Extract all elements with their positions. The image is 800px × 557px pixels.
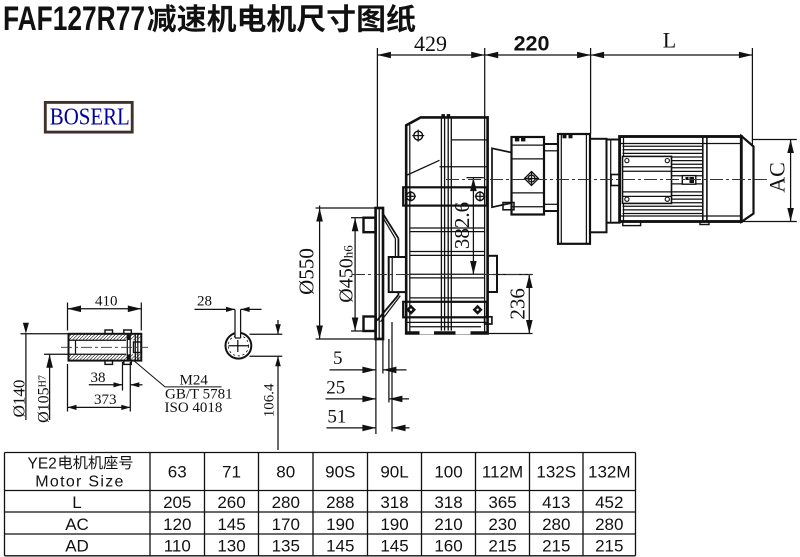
svg-text:236: 236	[506, 288, 530, 320]
svg-text:429: 429	[414, 31, 447, 56]
svg-text:L: L	[663, 28, 676, 53]
svg-text:110: 110	[164, 537, 191, 556]
svg-text:63: 63	[168, 463, 187, 482]
svg-text:AD: AD	[65, 537, 89, 556]
svg-text:130: 130	[217, 537, 245, 556]
svg-text:132M: 132M	[588, 463, 631, 482]
svg-text:318: 318	[434, 493, 462, 512]
svg-text:145: 145	[380, 537, 408, 556]
svg-text:260: 260	[217, 493, 245, 512]
svg-text:280: 280	[595, 515, 623, 534]
svg-text:210: 210	[434, 515, 462, 534]
svg-text:71: 71	[222, 463, 241, 482]
svg-text:205: 205	[163, 493, 191, 512]
svg-text:170: 170	[272, 515, 300, 534]
svg-text:80: 80	[276, 463, 295, 482]
svg-text:215: 215	[595, 537, 623, 556]
svg-text:230: 230	[488, 515, 516, 534]
svg-text:215: 215	[488, 537, 516, 556]
svg-text:373: 373	[94, 392, 117, 408]
svg-text:106.4: 106.4	[262, 383, 278, 417]
svg-text:280: 280	[542, 515, 570, 534]
svg-text:120: 120	[163, 515, 191, 534]
svg-text:FAF127R77: FAF127R77	[3, 0, 145, 38]
svg-text:452: 452	[595, 493, 623, 512]
svg-text:100: 100	[434, 463, 462, 482]
svg-text:AC: AC	[65, 515, 89, 534]
svg-text:318: 318	[380, 493, 408, 512]
svg-text:190: 190	[326, 515, 354, 534]
svg-text:28: 28	[197, 294, 212, 310]
svg-text:145: 145	[326, 537, 354, 556]
svg-text:YE2: YE2	[28, 456, 57, 473]
svg-text:38: 38	[91, 370, 106, 386]
svg-text:145: 145	[217, 515, 245, 534]
svg-text:L: L	[72, 493, 81, 512]
svg-text:160: 160	[434, 537, 462, 556]
svg-text:5: 5	[333, 348, 343, 369]
svg-text:90L: 90L	[380, 463, 408, 482]
svg-text:Ø550: Ø550	[295, 248, 319, 295]
svg-text:112M: 112M	[482, 463, 523, 482]
svg-text:Ø140: Ø140	[10, 380, 29, 418]
svg-text:25: 25	[326, 377, 345, 398]
svg-text:132S: 132S	[536, 463, 576, 482]
svg-text:BOSERL: BOSERL	[50, 105, 130, 131]
svg-text:280: 280	[272, 493, 300, 512]
svg-text:190: 190	[380, 515, 408, 534]
svg-text:288: 288	[326, 493, 354, 512]
svg-text:410: 410	[95, 293, 118, 309]
svg-text:215: 215	[542, 537, 570, 556]
svg-text:Motor Size: Motor Size	[35, 474, 124, 491]
svg-text:365: 365	[488, 493, 516, 512]
svg-text:220: 220	[514, 31, 550, 55]
svg-text:413: 413	[542, 493, 570, 512]
svg-text:AC: AC	[765, 162, 790, 193]
svg-text:51: 51	[327, 406, 346, 427]
svg-text:90S: 90S	[325, 463, 355, 482]
svg-text:382.6: 382.6	[450, 202, 474, 249]
svg-text:ISO 4018: ISO 4018	[165, 400, 223, 416]
svg-text:135: 135	[272, 537, 300, 556]
